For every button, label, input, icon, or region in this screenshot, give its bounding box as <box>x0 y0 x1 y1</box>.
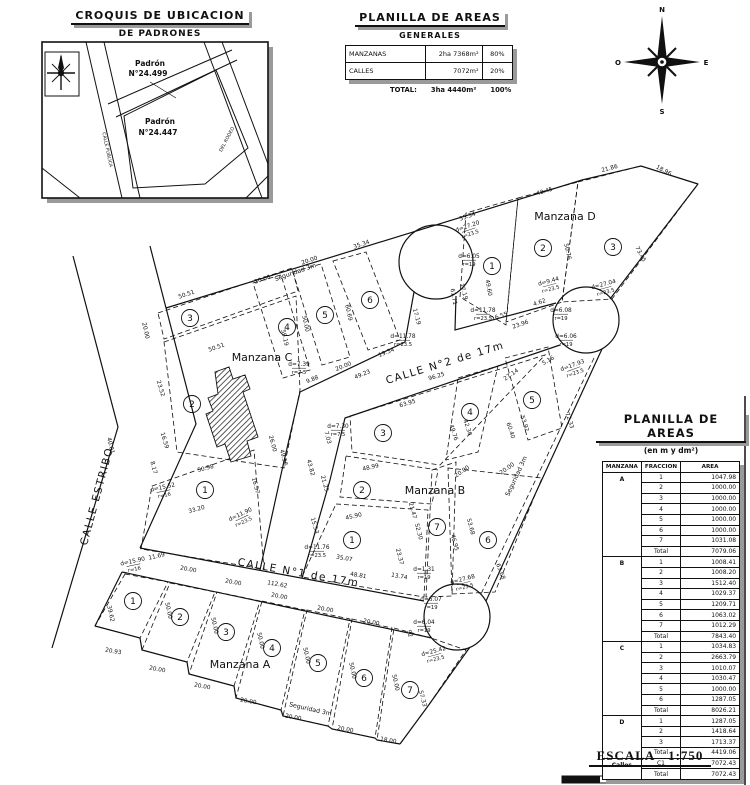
generales-title: PLANILLA DE AREAS <box>355 11 505 27</box>
dim-label: d=6.04 <box>413 620 435 626</box>
dim-label: 20.00 <box>239 698 257 707</box>
dim-label-group: r=19 <box>559 340 573 348</box>
manzana-label: Manzana D <box>534 210 595 223</box>
dim-label: 18.00 <box>379 737 397 746</box>
dim-label: 20.93 <box>104 648 122 657</box>
croquis-heading: CROQUIS DE UBICACION DE PADRONES <box>60 4 260 39</box>
areas-fraccion-cell: 3 <box>641 737 680 748</box>
areas-fraccion-cell: 4 <box>641 589 680 600</box>
lot-number-label: 1 <box>489 262 495 272</box>
lot-a7 <box>377 628 466 744</box>
lot-number-label: 3 <box>380 429 386 439</box>
areas-area-cell: 1000.00 <box>681 493 740 504</box>
dim-label-group: r=23.5 <box>474 314 492 322</box>
dim-label: d=11.76 <box>304 545 329 551</box>
lot-number-label: 3 <box>610 243 616 253</box>
areas-header-cell: AREA <box>681 462 740 473</box>
generales-row-value: 2ha 7368m² <box>426 46 482 63</box>
table-row: MANZANAS 2ha 7368m² 80% <box>346 46 513 63</box>
lot-a3 <box>189 592 260 686</box>
generales-subtitle: GENERALES <box>340 31 520 40</box>
dim-label: 52.30 <box>413 523 423 541</box>
areas-fraccion-cell: 1 <box>641 716 680 727</box>
generales-table: MANZANAS 2ha 7368m² 80% CALLES 7072m² 20… <box>345 45 513 80</box>
areas-area-cell: 7843.40 <box>681 631 740 642</box>
dim-label: d=15.52 <box>150 482 176 493</box>
areas-header-row: MANZANAFRACCIONAREA <box>602 462 739 473</box>
dim-label: 35.07 <box>335 555 353 564</box>
lot-number-label: 1 <box>202 486 208 496</box>
areas-heading: PLANILLA DE AREAS (en m y dm²) <box>596 412 746 455</box>
dim-label: d=7.30 <box>327 424 349 430</box>
dim-label-group: r=23.5 <box>308 551 326 559</box>
dim-label: d=6.05 <box>458 254 480 260</box>
dim-label: 5.16 <box>541 355 555 367</box>
areas-fraccion-cell: 2 <box>641 652 680 663</box>
lot-number-label: 7 <box>434 523 440 533</box>
areas-subtitle: (en m y dm²) <box>596 446 746 455</box>
building-footprint-hatched <box>206 367 258 462</box>
dim-radius-label: r=19 <box>462 262 475 268</box>
dim-label: 20.00 <box>254 274 272 285</box>
dim-label: d=11.78 <box>390 334 415 340</box>
dim-label: 33.20 <box>188 505 206 515</box>
lot-number-label: 1 <box>130 597 136 607</box>
manzana-label: Manzana A <box>210 658 271 671</box>
generales-row-label: MANZANAS <box>346 46 426 63</box>
areas-area-cell: 1000.00 <box>681 525 740 536</box>
lot-d3 <box>562 166 698 302</box>
dim-radius-label: r=7.5 <box>292 370 307 376</box>
dim-label: 43.82 <box>305 459 315 477</box>
dim-label: 17.19 <box>458 283 468 301</box>
padron-24499-label-1: Padrón <box>135 59 165 68</box>
dim-label: d=6.07 <box>420 597 442 603</box>
dim-label: 39.62 <box>105 605 115 623</box>
areas-area-cell: 7079.06 <box>681 546 740 557</box>
dim-label: d=6.06 <box>555 334 577 340</box>
areas-fraccion-cell: 6 <box>641 695 680 706</box>
dim-radius-label: r=19 <box>424 605 437 611</box>
dim-radius-label: r=7.5 <box>331 432 346 438</box>
areas-header-cell: MANZANA <box>602 462 641 473</box>
table-row: B11008.41 <box>602 557 739 568</box>
lot-number-label: 2 <box>359 486 365 496</box>
lot-number-label: 7 <box>407 686 413 696</box>
dim-label: 63.95 <box>399 399 417 410</box>
areas-area-cell: 1287.05 <box>681 716 740 727</box>
areas-area-cell: 1008.41 <box>681 557 740 568</box>
areas-fraccion-cell: 6 <box>641 525 680 536</box>
dim-label: d=11.78 <box>470 308 495 314</box>
areas-table-block: PLANILLA DE AREAS (en m y dm²) MANZANAFR… <box>596 412 746 780</box>
dim-label-group: r=7.5 <box>331 430 346 438</box>
generales-total-value: 3ha 4440m² <box>431 86 477 94</box>
dim-label: 20.00 <box>179 566 197 575</box>
dim-label: 20.00 <box>224 579 242 588</box>
areas-area-cell: 1287.05 <box>681 695 740 706</box>
compass-e-label: E <box>704 59 709 67</box>
generales-total-row: TOTAL: 3ha 4440m² 100% <box>390 86 511 94</box>
scale-label: ESCALA <box>597 748 656 763</box>
dim-label: 13.74 <box>390 573 408 582</box>
areas-fraccion-cell: 6 <box>641 610 680 621</box>
lot-number-label: 4 <box>269 644 275 654</box>
dim-radius-label: r=16 <box>127 566 141 575</box>
areas-area-cell: 1512.40 <box>681 578 740 589</box>
dim-label: 19.34 <box>378 347 396 359</box>
padron-24447-label-2: N°24.447 <box>139 128 178 137</box>
generales-total-label: TOTAL: <box>390 86 417 94</box>
dim-label: 23.52 <box>155 380 166 398</box>
dim-label: 72.33 <box>564 412 575 430</box>
areas-fraccion-cell: 5 <box>641 684 680 695</box>
areas-fraccion-cell: 1 <box>641 642 680 653</box>
dim-label: 23.37 <box>394 548 404 566</box>
dim-radius-label: r=19 <box>417 575 430 581</box>
dim-label-group: r=7.5 <box>292 368 307 376</box>
manzana-label: Manzana B <box>405 484 465 497</box>
dim-label-group: r=19 <box>424 603 438 611</box>
dim-radius-label: r=16 <box>157 492 171 501</box>
areas-area-cell: 1034.83 <box>681 642 740 653</box>
areas-area-cell: 1030.47 <box>681 673 740 684</box>
dim-radius-label: r=23.5 <box>308 553 326 559</box>
areas-area-cell: 1047.98 <box>681 472 740 483</box>
areas-area-cell: 1010.07 <box>681 663 740 674</box>
areas-header-cell: FRACCION <box>641 462 680 473</box>
dim-label: 15.53 <box>309 517 319 535</box>
dim-label: 49.23 <box>354 369 372 381</box>
areas-area-cell: 1000.00 <box>681 504 740 515</box>
areas-fraccion-cell: 2 <box>641 483 680 494</box>
areas-fraccion-cell: 5 <box>641 514 680 525</box>
dim-label: 26.00 <box>267 435 277 453</box>
croquis-subtitle: DE PADRONES <box>60 29 260 39</box>
boundary-south-staircase <box>95 626 400 744</box>
areas-fraccion-cell: Total <box>641 546 680 557</box>
areas-fraccion-cell: 3 <box>641 493 680 504</box>
lot-number-label: 4 <box>467 408 473 418</box>
areas-fraccion-cell: 2 <box>641 726 680 737</box>
areas-area-cell: 1063.02 <box>681 610 740 621</box>
scale-ratio: 1:750 <box>668 748 703 763</box>
dim-label: 53.92 <box>519 415 530 433</box>
areas-area-cell: 1000.00 <box>681 684 740 695</box>
dim-label: 20.00 <box>148 666 166 675</box>
areas-fraccion-cell: 3 <box>641 578 680 589</box>
areas-fraccion-cell: 3 <box>641 663 680 674</box>
dim-label: 50.51 <box>178 289 196 300</box>
areas-area-cell: 1031.08 <box>681 536 740 547</box>
compass-o-label: O <box>615 59 621 67</box>
areas-area-cell: 2663.79 <box>681 652 740 663</box>
dim-label: 50.76 <box>562 243 572 261</box>
dim-label: 20.00 <box>336 726 354 735</box>
areas-fraccion-cell: Total <box>641 705 680 716</box>
table-row: A11047.98 <box>602 472 739 483</box>
compass-s-label: S <box>659 108 664 116</box>
generales-row-label: CALLES <box>346 63 426 80</box>
lot-number-label: 5 <box>315 659 321 669</box>
areas-area-cell: 7072.43 <box>681 769 740 780</box>
lot-number-label: 2 <box>189 400 195 410</box>
areas-area-cell: 1209.71 <box>681 599 740 610</box>
areas-manzana-cell: B <box>602 557 641 642</box>
areas-title: PLANILLA DE AREAS <box>596 412 746 443</box>
generales-heading: PLANILLA DE AREAS GENERALES <box>340 6 520 40</box>
compass-n-label: N <box>659 6 665 14</box>
generales-row-value: 7072m² <box>426 63 482 80</box>
lot-number-label: 6 <box>485 536 491 546</box>
dim-label-group: r=19 <box>417 573 431 581</box>
padron-24447-label-1: Padrón <box>145 117 175 126</box>
table-row: D11287.05 <box>602 716 739 727</box>
dim-label: 20.00 <box>270 593 288 602</box>
dim-label: d=15.90 <box>120 556 146 567</box>
dim-radius-label: r=23.5 <box>394 342 412 348</box>
areas-fraccion-cell: 2 <box>641 567 680 578</box>
cul-de-sac-south <box>424 584 490 650</box>
areas-area-cell: 1418.64 <box>681 726 740 737</box>
dim-label-group: r=23.5 <box>394 340 412 348</box>
dim-radius-label: r=19 <box>417 628 430 634</box>
lot-number-label: 6 <box>367 296 373 306</box>
dim-label-group: r=19 <box>417 626 431 634</box>
areas-area-cell: 8026.21 <box>681 705 740 716</box>
dim-label: 45.90 <box>345 512 363 521</box>
dim-label: 11.69 <box>148 552 166 561</box>
survey-plan-sheet: Padrón N°24.499 Padrón N°24.447 CALLE PU… <box>0 0 750 785</box>
dim-label-group: r=19 <box>554 314 568 322</box>
generales-row-pct: 20% <box>482 63 512 80</box>
scale-text: ESCALA 1:750 <box>589 748 712 767</box>
dim-label: 20.00 <box>284 714 302 723</box>
seguridad-strip-label: Seguridad 3m <box>504 455 529 497</box>
lot-number-label: 5 <box>529 396 535 406</box>
areas-manzana-cell: C <box>602 642 641 716</box>
manzana-label: Manzana C <box>232 351 293 364</box>
dim-label: 42.30 <box>462 419 473 437</box>
street-name-label: CALLE ESTRIBO <box>78 446 116 547</box>
dim-label: 17.19 <box>411 308 421 326</box>
lot-number-label: 3 <box>223 628 229 638</box>
areas-area-cell: 1000.00 <box>681 514 740 525</box>
lot-number-label: 2 <box>177 613 183 623</box>
dim-label: 50.00 <box>300 315 309 333</box>
dim-label: 20.00 <box>193 683 211 692</box>
table-row: CALLES 7072m² 20% <box>346 63 513 80</box>
dim-label: 92 <box>405 629 413 638</box>
lot-number-label: 4 <box>284 323 290 333</box>
lot-number-label: 5 <box>322 311 328 321</box>
areas-area-cell: 1008.20 <box>681 567 740 578</box>
croquis-title: CROQUIS DE UBICACION <box>71 9 248 25</box>
dim-label: 50.00 <box>390 674 400 692</box>
areas-fraccion-cell: 4 <box>641 504 680 515</box>
areas-fraccion-cell: 5 <box>641 599 680 610</box>
generales-row-pct: 80% <box>482 46 512 63</box>
dim-label: 40.45 <box>536 187 554 198</box>
padron-24499-label-2: N°24.499 <box>129 69 168 78</box>
dim-label: 16.59 <box>159 432 170 450</box>
areas-fraccion-cell: Total <box>641 631 680 642</box>
dim-label: 8.17 <box>148 461 157 475</box>
compass-rose: N S E O <box>615 6 709 116</box>
areas-area-cell: 1713.37 <box>681 737 740 748</box>
croquis-compass-icon <box>45 52 79 96</box>
areas-fraccion-cell: 7 <box>641 536 680 547</box>
dim-label: 49.60 <box>484 279 493 297</box>
dim-label: 35.34 <box>353 239 371 250</box>
dim-label: 20.00 <box>316 606 334 615</box>
map-labels-layer: 50.5120.0050.5123.5216.5920.0020.0035.34… <box>78 164 672 746</box>
areas-table: MANZANAFRACCIONAREAA11047.9821000.003100… <box>602 461 740 780</box>
dim-radius-label: r=23.5 <box>474 316 492 322</box>
lot-number-label: 1 <box>349 536 355 546</box>
scale-block: ESCALA 1:750 <box>575 748 725 767</box>
dim-label: 60.40 <box>505 422 516 440</box>
dim-label: 50.98 <box>197 464 215 474</box>
dim-label: 21.25 <box>319 475 329 493</box>
dim-label: 21.47 <box>407 502 417 520</box>
dim-label: 23.96 <box>512 319 530 330</box>
table-row: C11034.83 <box>602 642 739 653</box>
areas-fraccion-cell: Total <box>641 769 680 780</box>
seguridad-strip-line-b <box>480 358 594 596</box>
dim-label: d=1.31 <box>413 567 435 573</box>
dim-label: 50.51 <box>208 342 226 353</box>
areas-fraccion-cell: 4 <box>641 673 680 684</box>
areas-fraccion-cell: 7 <box>641 620 680 631</box>
areas-manzana-cell: A <box>602 472 641 557</box>
lot-number-label: 6 <box>361 674 367 684</box>
areas-fraccion-cell: 1 <box>641 557 680 568</box>
dim-radius-label: r=19 <box>559 342 572 348</box>
dim-label: 18.96 <box>655 165 673 178</box>
dim-label: 61.71 <box>449 288 458 306</box>
lot-number-label: 2 <box>540 244 546 254</box>
dim-label: 20.00 <box>454 465 471 480</box>
dim-radius-label: r=19 <box>554 316 567 322</box>
dim-label: 20.00 <box>140 322 150 340</box>
dim-label: 21.86 <box>601 164 619 174</box>
dim-label: 48.99 <box>362 463 380 472</box>
areas-area-cell: 1029.37 <box>681 589 740 600</box>
dim-label: 53.68 <box>465 518 475 536</box>
dim-label: 20.00 <box>362 619 380 628</box>
dim-label: d=6.08 <box>550 308 572 314</box>
areas-area-cell: 1000.00 <box>681 483 740 494</box>
dim-label: 16.57 <box>250 477 260 495</box>
croquis-inset: Padrón N°24.499 Padrón N°24.447 CALLE PU… <box>42 42 273 203</box>
areas-fraccion-cell: 1 <box>641 472 680 483</box>
areas-area-cell: 1012.29 <box>681 620 740 631</box>
generales-total-pct: 100% <box>490 86 511 94</box>
lot-number-label: 3 <box>187 314 193 324</box>
dim-label-group: r=19 <box>462 260 476 268</box>
lot-a4 <box>236 601 305 710</box>
dim-label: 112.62 <box>267 580 288 589</box>
